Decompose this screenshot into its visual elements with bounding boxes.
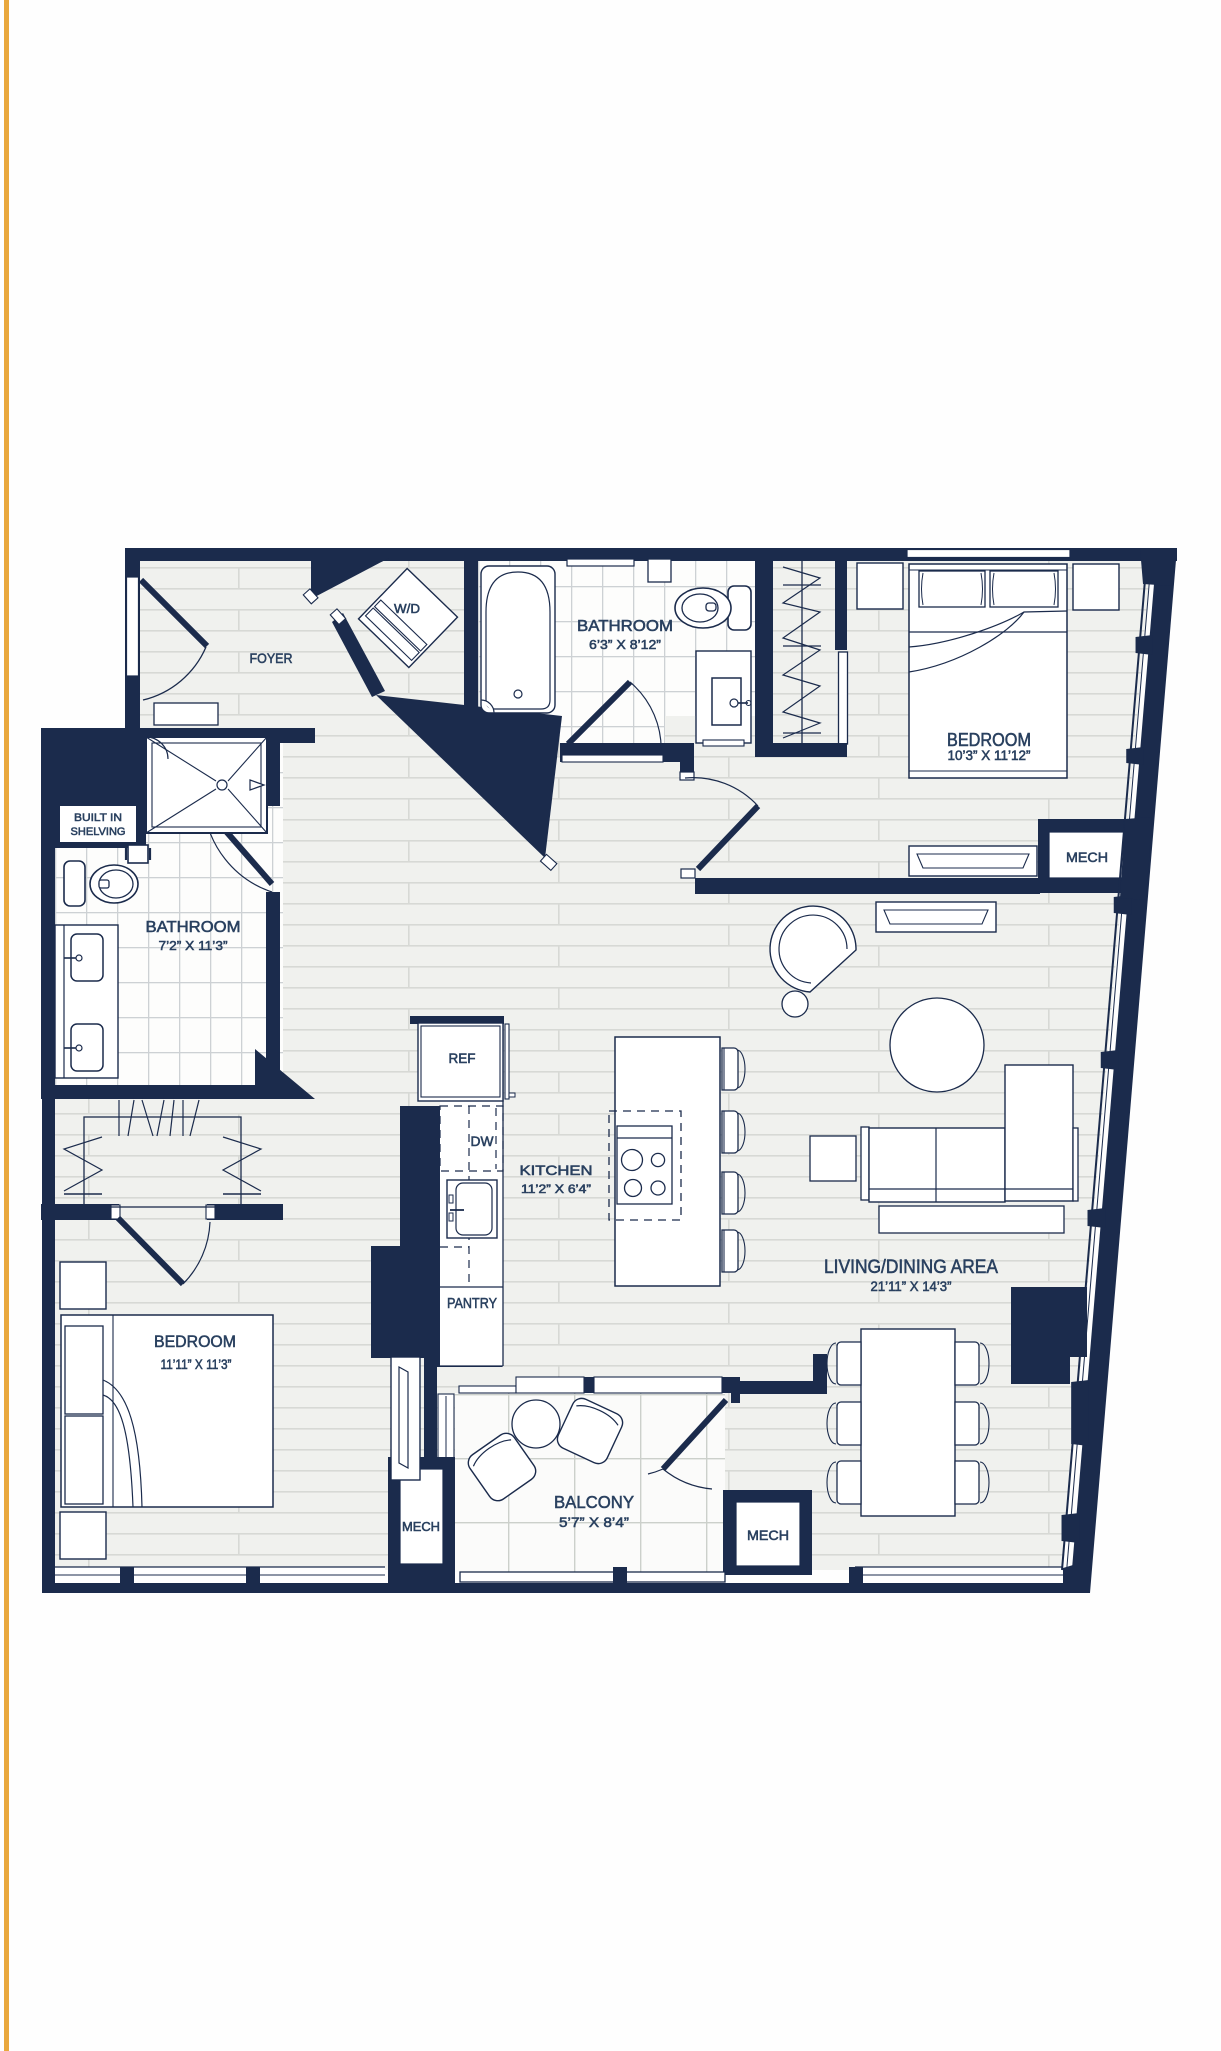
svg-text:5’7” X 8’4”: 5’7” X 8’4”	[559, 1514, 629, 1530]
svg-text:BATHROOM: BATHROOM	[577, 618, 673, 635]
svg-text:SHELVING: SHELVING	[71, 826, 126, 838]
svg-text:11’2” X 6’4”: 11’2” X 6’4”	[521, 1184, 591, 1196]
svg-text:BEDROOM: BEDROOM	[154, 1332, 236, 1351]
svg-text:6’3” X 8’12”: 6’3” X 8’12”	[589, 637, 661, 652]
svg-text:11’11” X 11’3”: 11’11” X 11’3”	[161, 1357, 232, 1372]
svg-text:MECH: MECH	[1066, 850, 1108, 865]
svg-text:10’3” X 11’12”: 10’3” X 11’12”	[948, 748, 1031, 763]
svg-text:LIVING/DINING AREA: LIVING/DINING AREA	[824, 1257, 998, 1278]
svg-text:FOYER: FOYER	[250, 650, 293, 666]
svg-text:REF: REF	[449, 1051, 476, 1066]
svg-text:MECH: MECH	[402, 1520, 440, 1534]
svg-text:W/D: W/D	[394, 601, 420, 616]
svg-text:BEDROOM: BEDROOM	[947, 730, 1031, 750]
svg-text:21’11” X 14’3”: 21’11” X 14’3”	[871, 1278, 952, 1294]
svg-text:KITCHEN: KITCHEN	[520, 1163, 593, 1178]
svg-text:BALCONY: BALCONY	[554, 1492, 634, 1512]
svg-text:PANTRY: PANTRY	[447, 1295, 497, 1312]
svg-text:7’2” X 11’3”: 7’2” X 11’3”	[159, 938, 228, 953]
svg-text:BUILT IN: BUILT IN	[74, 812, 122, 824]
svg-text:DW: DW	[471, 1133, 495, 1149]
svg-text:BATHROOM: BATHROOM	[146, 919, 241, 936]
svg-text:MECH: MECH	[747, 1528, 789, 1543]
